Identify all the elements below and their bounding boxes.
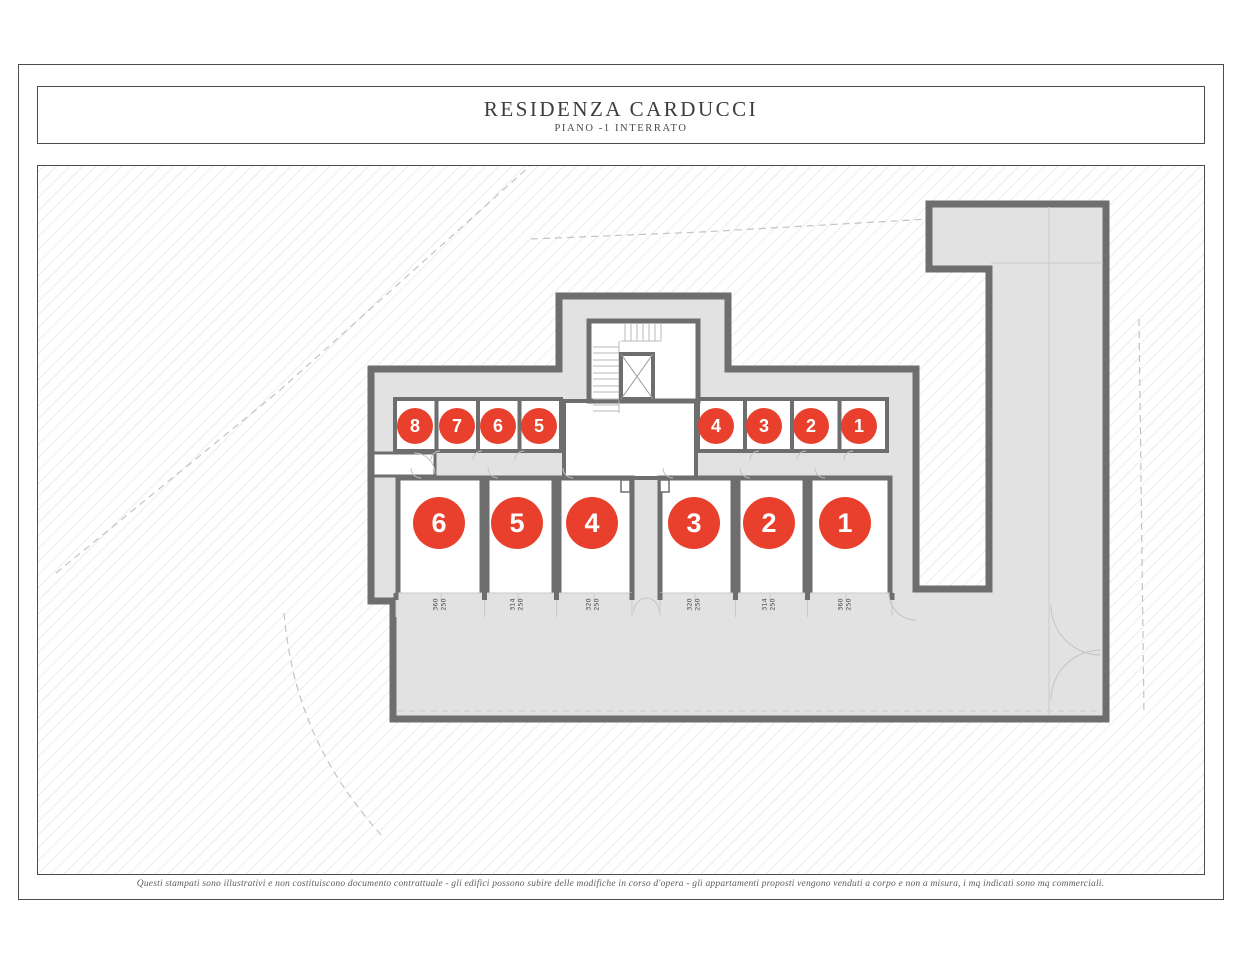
drawing-area (37, 165, 1205, 875)
page: { "header": { "title": "RESIDENZA CARDUC… (0, 0, 1241, 960)
cellar-unit-badge-7[interactable]: 7 (439, 408, 475, 444)
disclaimer-text: Questi stampati sono illustrativi e non … (0, 879, 1241, 889)
elevator-shaft (621, 354, 653, 399)
cellar-unit-badge-8[interactable]: 8 (397, 408, 433, 444)
dimension-label: 320250 (686, 592, 703, 618)
garage-unit-badge-1[interactable]: 1 (819, 497, 871, 549)
cellar-unit-badge-2[interactable]: 2 (793, 408, 829, 444)
cellar-unit-badge-5[interactable]: 5 (521, 408, 557, 444)
page-title: RESIDENZA CARDUCCI (484, 97, 758, 121)
floor-plan-svg (38, 166, 1204, 874)
garage-unit-badge-3[interactable]: 3 (668, 497, 720, 549)
stair-vestibule (564, 401, 696, 478)
cellar-unit-badge-3[interactable]: 3 (746, 408, 782, 444)
dimension-label: 314250 (761, 592, 778, 618)
garage-unit-badge-2[interactable]: 2 (743, 497, 795, 549)
garage-unit-badge-4[interactable]: 4 (566, 497, 618, 549)
dimension-label: 314250 (509, 592, 526, 618)
dimension-label: 320250 (585, 592, 602, 618)
cellar-unit-badge-1[interactable]: 1 (841, 408, 877, 444)
floor-subtitle: PIANO -1 INTERRATO (554, 123, 687, 134)
dimension-label: 360250 (837, 592, 854, 618)
dimension-label: 360250 (432, 592, 449, 618)
garage-unit-badge-6[interactable]: 6 (413, 497, 465, 549)
title-box: RESIDENZA CARDUCCI PIANO -1 INTERRATO (37, 86, 1205, 144)
cellar-unit-badge-4[interactable]: 4 (698, 408, 734, 444)
garage-unit-badge-5[interactable]: 5 (491, 497, 543, 549)
cellar-unit-badge-6[interactable]: 6 (480, 408, 516, 444)
